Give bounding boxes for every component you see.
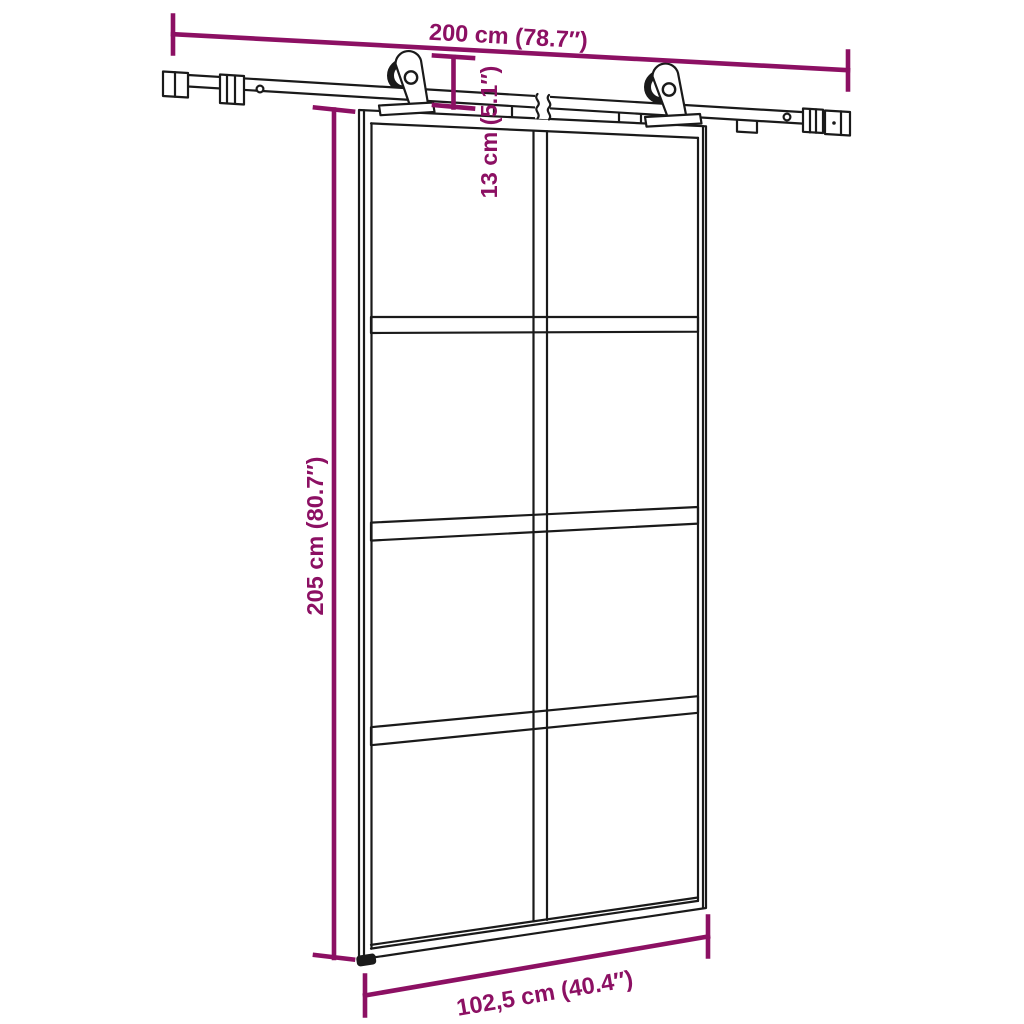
hanger-mount-plate bbox=[645, 114, 702, 127]
sliding-door-dimension-diagram: 200 cm (78.7″) 13 cm (5.1″) 205 cm (80.7… bbox=[0, 0, 1024, 1024]
glass-pane bbox=[547, 524, 698, 711]
hanger-bolt bbox=[405, 71, 417, 83]
door-height-label: 205 cm (80.7″) bbox=[302, 457, 328, 616]
glass-pane bbox=[547, 332, 698, 515]
glass-pane bbox=[371, 729, 534, 945]
hanger-mount-plate bbox=[379, 103, 435, 116]
glass-pane bbox=[371, 123, 534, 317]
glass-pane bbox=[547, 713, 698, 920]
rail-hole bbox=[784, 114, 791, 121]
artwork bbox=[163, 51, 850, 967]
door-panel bbox=[359, 110, 706, 960]
rail-end-cap-right bbox=[825, 111, 850, 136]
glass-pane bbox=[371, 332, 534, 522]
rail-to-door-offset-label: 13 cm (5.1″) bbox=[476, 66, 502, 199]
glass-pane bbox=[547, 131, 698, 317]
dimension-tick bbox=[434, 105, 473, 109]
rail-hole bbox=[257, 86, 264, 93]
glass-pane bbox=[371, 532, 534, 727]
dimension-tick bbox=[315, 955, 353, 960]
rail-collar-right bbox=[803, 109, 823, 134]
cap-dot bbox=[832, 121, 836, 125]
hanger-bolt bbox=[663, 83, 675, 95]
rail-collar-left bbox=[220, 75, 244, 105]
